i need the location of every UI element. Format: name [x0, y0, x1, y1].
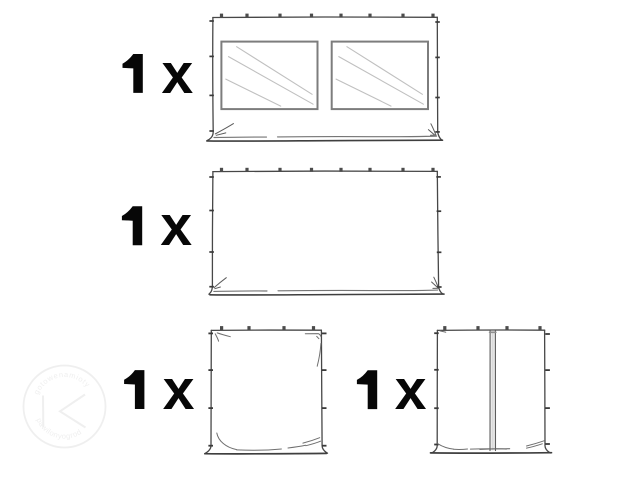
- svg-text:x: x: [160, 194, 192, 258]
- svg-text:x: x: [395, 358, 427, 422]
- svg-text:x: x: [163, 358, 195, 422]
- svg-text:pawilonyogrod: pawilonyogrod: [35, 416, 84, 440]
- svg-text:x: x: [162, 42, 194, 106]
